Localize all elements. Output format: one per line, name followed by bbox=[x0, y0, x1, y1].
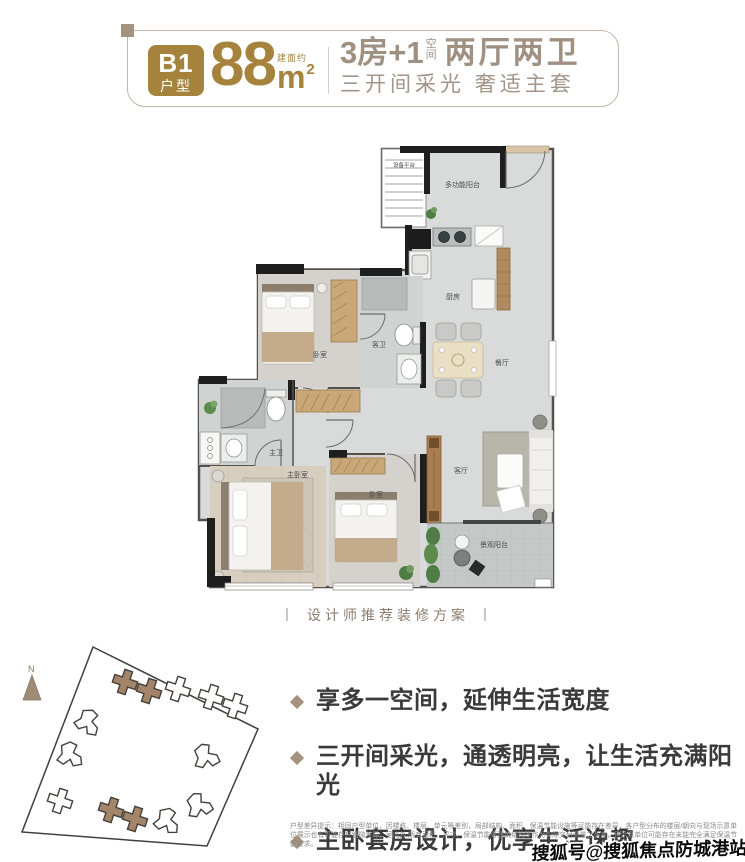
room-label-dining: 餐厅 bbox=[495, 358, 509, 367]
area-value: 88 bbox=[210, 36, 275, 94]
north-label: N bbox=[28, 664, 35, 674]
headline-stack-bottom: 间 bbox=[426, 50, 437, 61]
room-label-bedroom-right: 卧室 bbox=[369, 490, 383, 499]
north-arrow-icon bbox=[23, 675, 41, 700]
siteplan-graphic: N bbox=[15, 645, 285, 855]
area-figure: 88 建面约 m 2 bbox=[210, 36, 315, 94]
room-label-equipment-platform: 设备平台 bbox=[393, 161, 416, 169]
headline-rooms: 3房+1 bbox=[340, 37, 424, 68]
area-exponent: 2 bbox=[306, 64, 314, 76]
feature-text: 三开间采光，通透明亮，让生活充满阳光 bbox=[316, 743, 745, 801]
caption-left-bar: 丨 bbox=[280, 607, 298, 623]
caption-right-bar: 丨 bbox=[478, 607, 496, 623]
area-unit: m bbox=[277, 64, 305, 90]
headline-halls: 两厅两卫 bbox=[445, 37, 581, 68]
watermark: 搜狐号@搜狐焦点防城港站 bbox=[532, 834, 745, 862]
feature-text: 享多一空间，延伸生活宽度 bbox=[316, 687, 610, 716]
room-label-guest-bathroom: 客卫 bbox=[372, 340, 386, 349]
diamond-bullet-icon bbox=[290, 751, 304, 765]
unit-type-label: 户型 bbox=[148, 79, 204, 93]
diamond-bullet-icon bbox=[290, 695, 304, 709]
header-corner-ornament bbox=[121, 24, 134, 37]
room-label-view-balcony: 景观阳台 bbox=[480, 540, 508, 549]
room-label-bedroom-top: 卧室 bbox=[313, 350, 327, 359]
room-label-multifunction-balcony: 多功能阳台 bbox=[445, 180, 480, 189]
room-label-living: 客厅 bbox=[454, 466, 468, 475]
room-label-master-bedroom: 主卧室 bbox=[287, 470, 308, 479]
headline: 3房+1 空 间 两厅两卫 三开间采光 奢适主套 bbox=[340, 37, 581, 95]
subheadline: 三开间采光 奢适主套 bbox=[340, 74, 581, 95]
feature-item: 三开间采光，通透明亮，让生活充满阳光 bbox=[290, 743, 745, 801]
header-divider bbox=[328, 47, 329, 94]
flyer-page: B1 户型 88 建面约 m 2 3房+1 空 间 两厅两卫 三开间采光 奢适主… bbox=[0, 0, 745, 862]
unit-type-code: B1 bbox=[148, 50, 204, 76]
caption-text: 设计师推荐装修方案 bbox=[307, 607, 469, 623]
room-label-master-bathroom: 主卫 bbox=[269, 448, 283, 457]
plan-caption: 丨设计师推荐装修方案丨 bbox=[163, 605, 613, 625]
room-label-kitchen: 厨房 bbox=[446, 292, 460, 301]
feature-item: 享多一空间，延伸生活宽度 bbox=[290, 687, 745, 716]
unit-type-badge: B1 户型 bbox=[148, 45, 204, 96]
floorplan-graphic: 设备平台 多功能阳台 厨房 客卫 卧室 餐厅 主卫 主卧室 卧室 客厅 景观阳台 bbox=[163, 136, 561, 592]
